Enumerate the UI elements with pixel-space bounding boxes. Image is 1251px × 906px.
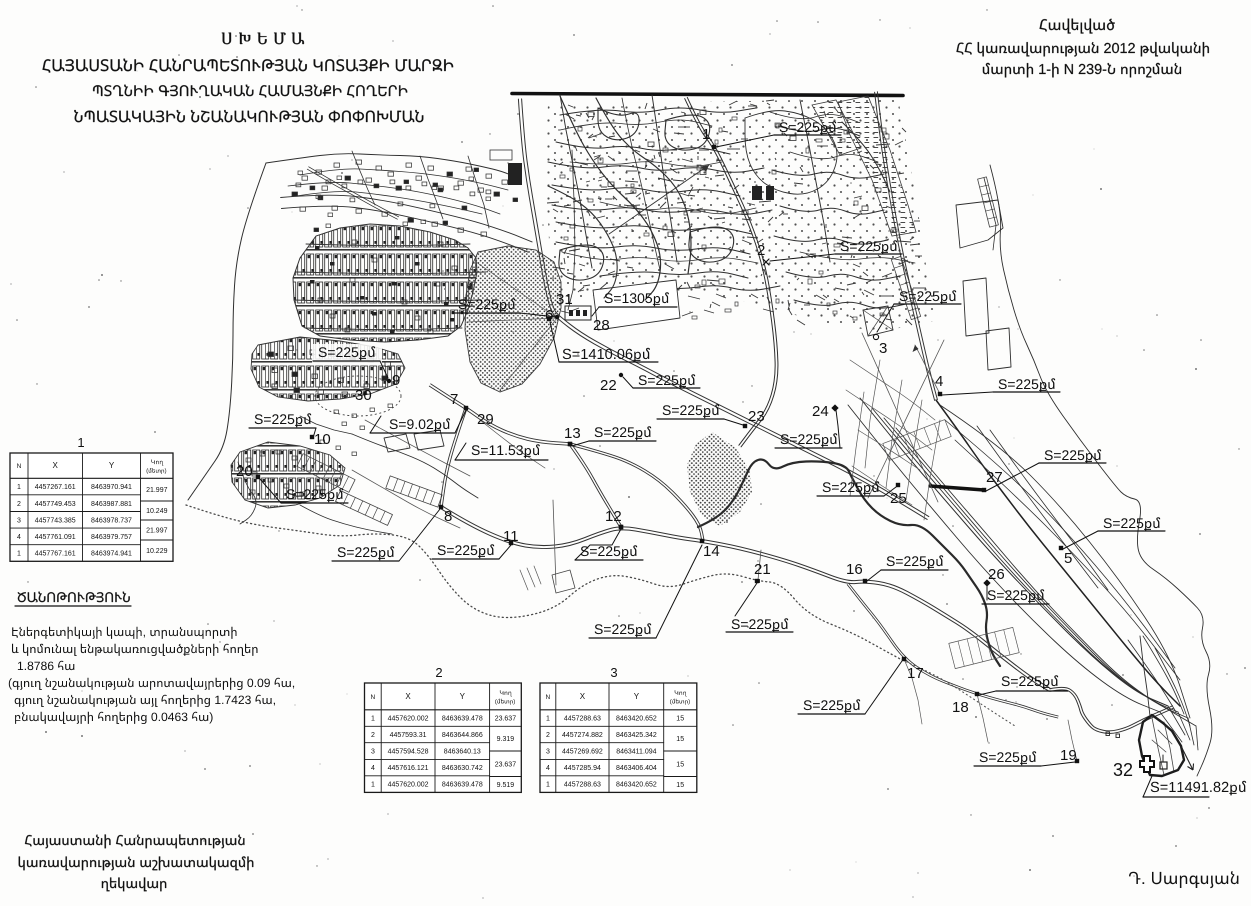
svg-text:7: 7 [450,391,458,408]
svg-text:1: 1 [17,551,21,558]
svg-text:8463979.757: 8463979.757 [91,534,132,541]
svg-text:15: 15 [676,761,684,768]
svg-text:8: 8 [444,508,452,525]
svg-text:4457749.453: 4457749.453 [35,501,76,508]
svg-text:29: 29 [477,411,494,428]
svg-text:4457288.63: 4457288.63 [564,782,601,789]
svg-text:8463411.094: 8463411.094 [616,749,656,756]
svg-text:Y: Y [109,461,115,470]
svg-text:4457267.161: 4457267.161 [35,484,76,491]
svg-text:8463644.866: 8463644.866 [442,732,483,739]
svg-text:21.997: 21.997 [146,487,168,494]
svg-text:8463420.652: 8463420.652 [616,782,657,789]
svg-text:5: 5 [1064,550,1072,567]
svg-text:4: 4 [546,765,550,772]
svg-text:8463630.742: 8463630.742 [442,765,483,772]
svg-text:2: 2 [546,732,550,739]
svg-text:4457743.385: 4457743.385 [35,517,76,524]
svg-text:1: 1 [77,435,84,450]
svg-text:26: 26 [988,566,1005,583]
svg-text:3: 3 [546,749,550,756]
svg-text:9.519: 9.519 [497,782,515,789]
svg-text:4457620.002: 4457620.002 [388,782,429,789]
svg-text:8463406.404: 8463406.404 [616,765,657,772]
svg-text:14: 14 [703,543,720,560]
svg-text:8463978.737: 8463978.737 [91,517,132,524]
svg-text:2: 2 [17,501,21,508]
svg-text:X: X [580,692,586,701]
svg-text:3: 3 [610,665,617,680]
svg-text:6: 6 [545,307,553,324]
svg-text:N: N [546,694,551,701]
svg-text:1: 1 [546,716,550,723]
svg-text:8463420.652: 8463420.652 [616,716,657,723]
svg-text:8463639.478: 8463639.478 [442,782,483,789]
svg-text:2: 2 [757,242,765,259]
svg-text:12: 12 [605,508,622,525]
svg-text:3: 3 [879,340,887,357]
svg-text:11: 11 [503,528,519,545]
svg-text:20: 20 [236,463,253,480]
svg-text:8463987.881: 8463987.881 [91,501,132,508]
svg-text:2: 2 [371,732,375,739]
svg-text:4457274.882: 4457274.882 [562,732,603,739]
svg-text:24: 24 [812,403,829,420]
svg-text:16: 16 [846,561,863,578]
svg-text:4457288.63: 4457288.63 [564,716,601,723]
svg-text:27: 27 [986,469,1003,486]
svg-text:4457620.002: 4457620.002 [388,716,429,723]
svg-text:9: 9 [392,372,400,389]
svg-text:4: 4 [371,765,375,772]
svg-text:25: 25 [890,490,907,507]
svg-text:3: 3 [371,749,375,756]
svg-text:15: 15 [676,736,684,743]
svg-text:13: 13 [564,425,581,442]
svg-text:4457269.692: 4457269.692 [562,749,603,756]
svg-text:10.229: 10.229 [146,548,168,555]
svg-text:N: N [17,463,22,470]
svg-text:2: 2 [435,665,442,680]
svg-text:1: 1 [371,716,375,723]
svg-text:17: 17 [907,665,924,682]
svg-text:15: 15 [676,716,684,723]
svg-text:1: 1 [371,782,375,789]
svg-text:4: 4 [935,373,943,390]
svg-text:X: X [405,692,411,701]
svg-text:8463425.342: 8463425.342 [616,732,657,739]
svg-text:Y: Y [634,692,640,701]
svg-text:X: X [53,461,59,470]
svg-text:4457616.121: 4457616.121 [388,765,429,772]
svg-text:31: 31 [556,291,573,308]
svg-text:N: N [371,694,376,701]
svg-text:8463970.941: 8463970.941 [91,484,132,491]
svg-text:30: 30 [355,387,372,404]
svg-text:3: 3 [17,517,21,524]
svg-text:21.997: 21.997 [146,528,168,535]
svg-text:1: 1 [546,782,550,789]
svg-text:8463640.13: 8463640.13 [444,749,481,756]
svg-text:4457594.528: 4457594.528 [388,749,429,756]
svg-text:8463974.941: 8463974.941 [91,551,132,558]
svg-text:23: 23 [748,408,765,425]
svg-text:32: 32 [1113,760,1133,780]
svg-text:4457761.091: 4457761.091 [35,534,76,541]
svg-text:8463639.478: 8463639.478 [442,716,483,723]
svg-text:19: 19 [1060,747,1077,764]
svg-text:15: 15 [676,782,684,789]
svg-text:23.637: 23.637 [495,761,517,768]
svg-text:23.637: 23.637 [495,716,517,723]
svg-text:4: 4 [17,534,21,541]
svg-text:10: 10 [314,431,331,448]
svg-text:4457767.161: 4457767.161 [35,551,76,558]
svg-text:22: 22 [600,377,617,394]
svg-text:28: 28 [593,317,610,334]
svg-text:1: 1 [17,484,21,491]
svg-text:4457593.31: 4457593.31 [390,732,427,739]
svg-text:9.319: 9.319 [497,736,515,743]
svg-text:10.249: 10.249 [146,508,168,515]
svg-text:18: 18 [952,699,969,716]
svg-text:21: 21 [754,561,771,578]
svg-text:Y: Y [460,692,466,701]
svg-text:1: 1 [702,126,710,143]
svg-text:4457285.94: 4457285.94 [564,765,601,772]
